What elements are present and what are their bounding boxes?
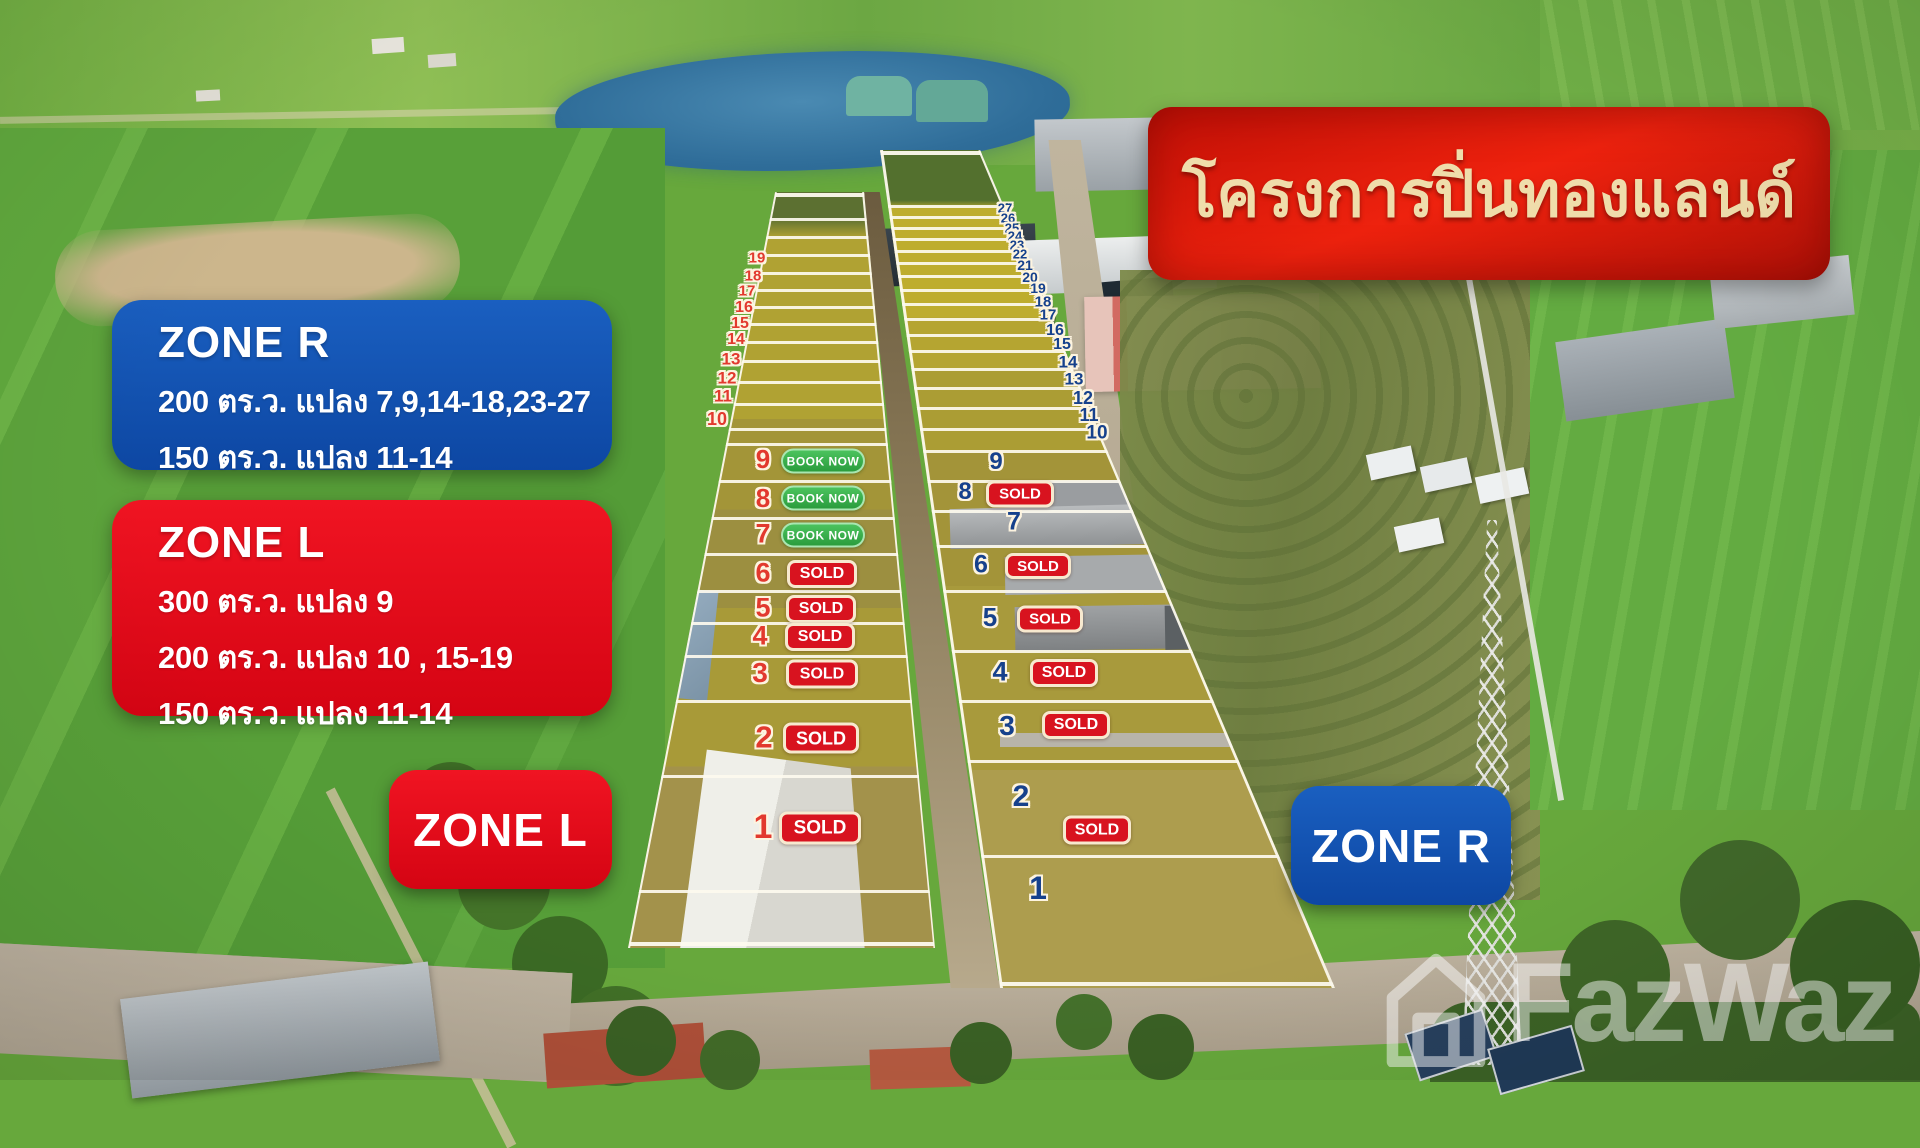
badge-sold-zoneR-4: SOLD bbox=[1030, 659, 1098, 687]
aerial-photo: 191817161514131211109BOOK NOW8BOOK NOW7B… bbox=[0, 0, 1920, 1080]
badge-sold-zoneR-6: SOLD bbox=[1005, 553, 1071, 579]
plot-number-zoneR-14: 14 bbox=[1059, 354, 1078, 371]
badge-sold-zoneL-1: SOLD bbox=[779, 812, 861, 845]
plot-number-zoneR-10: 10 bbox=[1086, 424, 1107, 443]
badge-sold-zoneL-2: SOLD bbox=[783, 723, 859, 754]
plot-number-zoneR-6: 6 bbox=[974, 553, 988, 578]
badge-sold-zoneL-6: SOLD bbox=[787, 560, 857, 588]
plot-number-zoneL-11: 11 bbox=[714, 388, 732, 405]
project-title-banner: โครงการปิ่นทองแลนด์ bbox=[1148, 107, 1830, 280]
badge-sold-zoneR-3: SOLD bbox=[1042, 711, 1110, 739]
zone-l-tag: ZONE L bbox=[389, 770, 612, 889]
plot-number-zoneR-3: 3 bbox=[999, 712, 1015, 740]
zone-r-tag-label: ZONE R bbox=[1311, 819, 1491, 873]
house-icon bbox=[1372, 939, 1500, 1067]
plot-number-zoneR-8: 8 bbox=[958, 480, 971, 504]
plot-number-zoneR-17: 17 bbox=[1040, 308, 1057, 323]
badge-sold-zoneR-2: SOLD bbox=[1063, 816, 1131, 845]
zone-l-legend-line: 200 ตร.ว. แปลง 10 , 15-19 bbox=[158, 632, 594, 682]
plot-number-zoneL-1: 1 bbox=[754, 810, 773, 844]
plot-number-zoneL-10: 10 bbox=[707, 410, 727, 428]
zone-l-legend-line: 150 ตร.ว. แปลง 11-14 bbox=[158, 688, 594, 738]
badge-sold-zoneL-4: SOLD bbox=[785, 623, 855, 651]
badge-book_now-zoneL-7: BOOK NOW bbox=[781, 523, 865, 548]
plot-number-zoneR-2: 2 bbox=[1013, 782, 1030, 812]
zone-r-legend-line: 200 ตร.ว. แปลง 7,9,14-18,23-27 bbox=[158, 376, 594, 426]
project-title: โครงการปิ่นทองแลนด์ bbox=[1182, 143, 1796, 245]
plot-number-zoneL-8: 8 bbox=[756, 485, 770, 511]
badge-book_now-zoneL-8: BOOK NOW bbox=[781, 486, 865, 511]
plot-number-zoneL-9: 9 bbox=[756, 446, 770, 472]
plot-number-zoneR-4: 4 bbox=[992, 659, 1007, 686]
plot-number-zoneR-7: 7 bbox=[1007, 510, 1021, 535]
plot-number-zoneL-18: 18 bbox=[745, 269, 762, 284]
badge-sold-zoneR-5: SOLD bbox=[1017, 606, 1083, 633]
zone-l-legend-title: ZONE L bbox=[158, 518, 594, 568]
zone-r-legend-line: 150 ตร.ว. แปลง 11-14 bbox=[158, 432, 594, 482]
plot-number-zoneL-17: 17 bbox=[739, 284, 756, 299]
zone-r-legend-title: ZONE R bbox=[158, 318, 594, 368]
zone-r-tag: ZONE R bbox=[1291, 786, 1511, 905]
plot-number-zoneL-4: 4 bbox=[752, 623, 767, 650]
plot-number-zoneR-5: 5 bbox=[983, 604, 997, 630]
badge-sold-zoneL-3: SOLD bbox=[786, 660, 858, 689]
zone-r-legend-box: ZONE R 200 ตร.ว. แปลง 7,9,14-18,23-27 15… bbox=[112, 300, 612, 470]
plot-number-zoneL-16: 16 bbox=[735, 300, 753, 316]
badge-sold-zoneR-8: SOLD bbox=[986, 481, 1054, 508]
plot-number-zoneL-3: 3 bbox=[752, 659, 768, 687]
zone-l-legend-box: ZONE L 300 ตร.ว. แปลง 9 200 ตร.ว. แปลง 1… bbox=[112, 500, 612, 716]
plot-number-zoneL-19: 19 bbox=[749, 251, 766, 266]
plot-number-zoneL-15: 15 bbox=[731, 316, 749, 332]
plot-number-zoneL-13: 13 bbox=[722, 351, 741, 368]
plot-number-zoneR-1: 1 bbox=[1029, 872, 1047, 904]
plot-number-zoneL-2: 2 bbox=[755, 722, 772, 753]
plot-number-zoneL-7: 7 bbox=[755, 521, 770, 548]
plot-number-zoneL-14: 14 bbox=[727, 332, 745, 348]
zone-l-legend-line: 300 ตร.ว. แปลง 9 bbox=[158, 576, 594, 626]
zone-l-tag-label: ZONE L bbox=[413, 803, 588, 857]
watermark-brand: FazWaz bbox=[1506, 938, 1895, 1067]
plot-number-zoneL-12: 12 bbox=[718, 370, 737, 387]
plot-number-zoneR-11: 11 bbox=[1079, 406, 1098, 424]
plot-number-zoneL-6: 6 bbox=[755, 560, 770, 587]
badge-sold-zoneL-5: SOLD bbox=[786, 595, 856, 623]
plot-number-zoneR-9: 9 bbox=[989, 450, 1002, 474]
plot-number-zoneL-5: 5 bbox=[755, 595, 770, 622]
badge-book_now-zoneL-9: BOOK NOW bbox=[781, 449, 865, 474]
plot-number-zoneR-13: 13 bbox=[1065, 371, 1084, 388]
watermark: FazWaz bbox=[1372, 938, 1895, 1067]
plot-number-zoneR-15: 15 bbox=[1053, 337, 1071, 353]
